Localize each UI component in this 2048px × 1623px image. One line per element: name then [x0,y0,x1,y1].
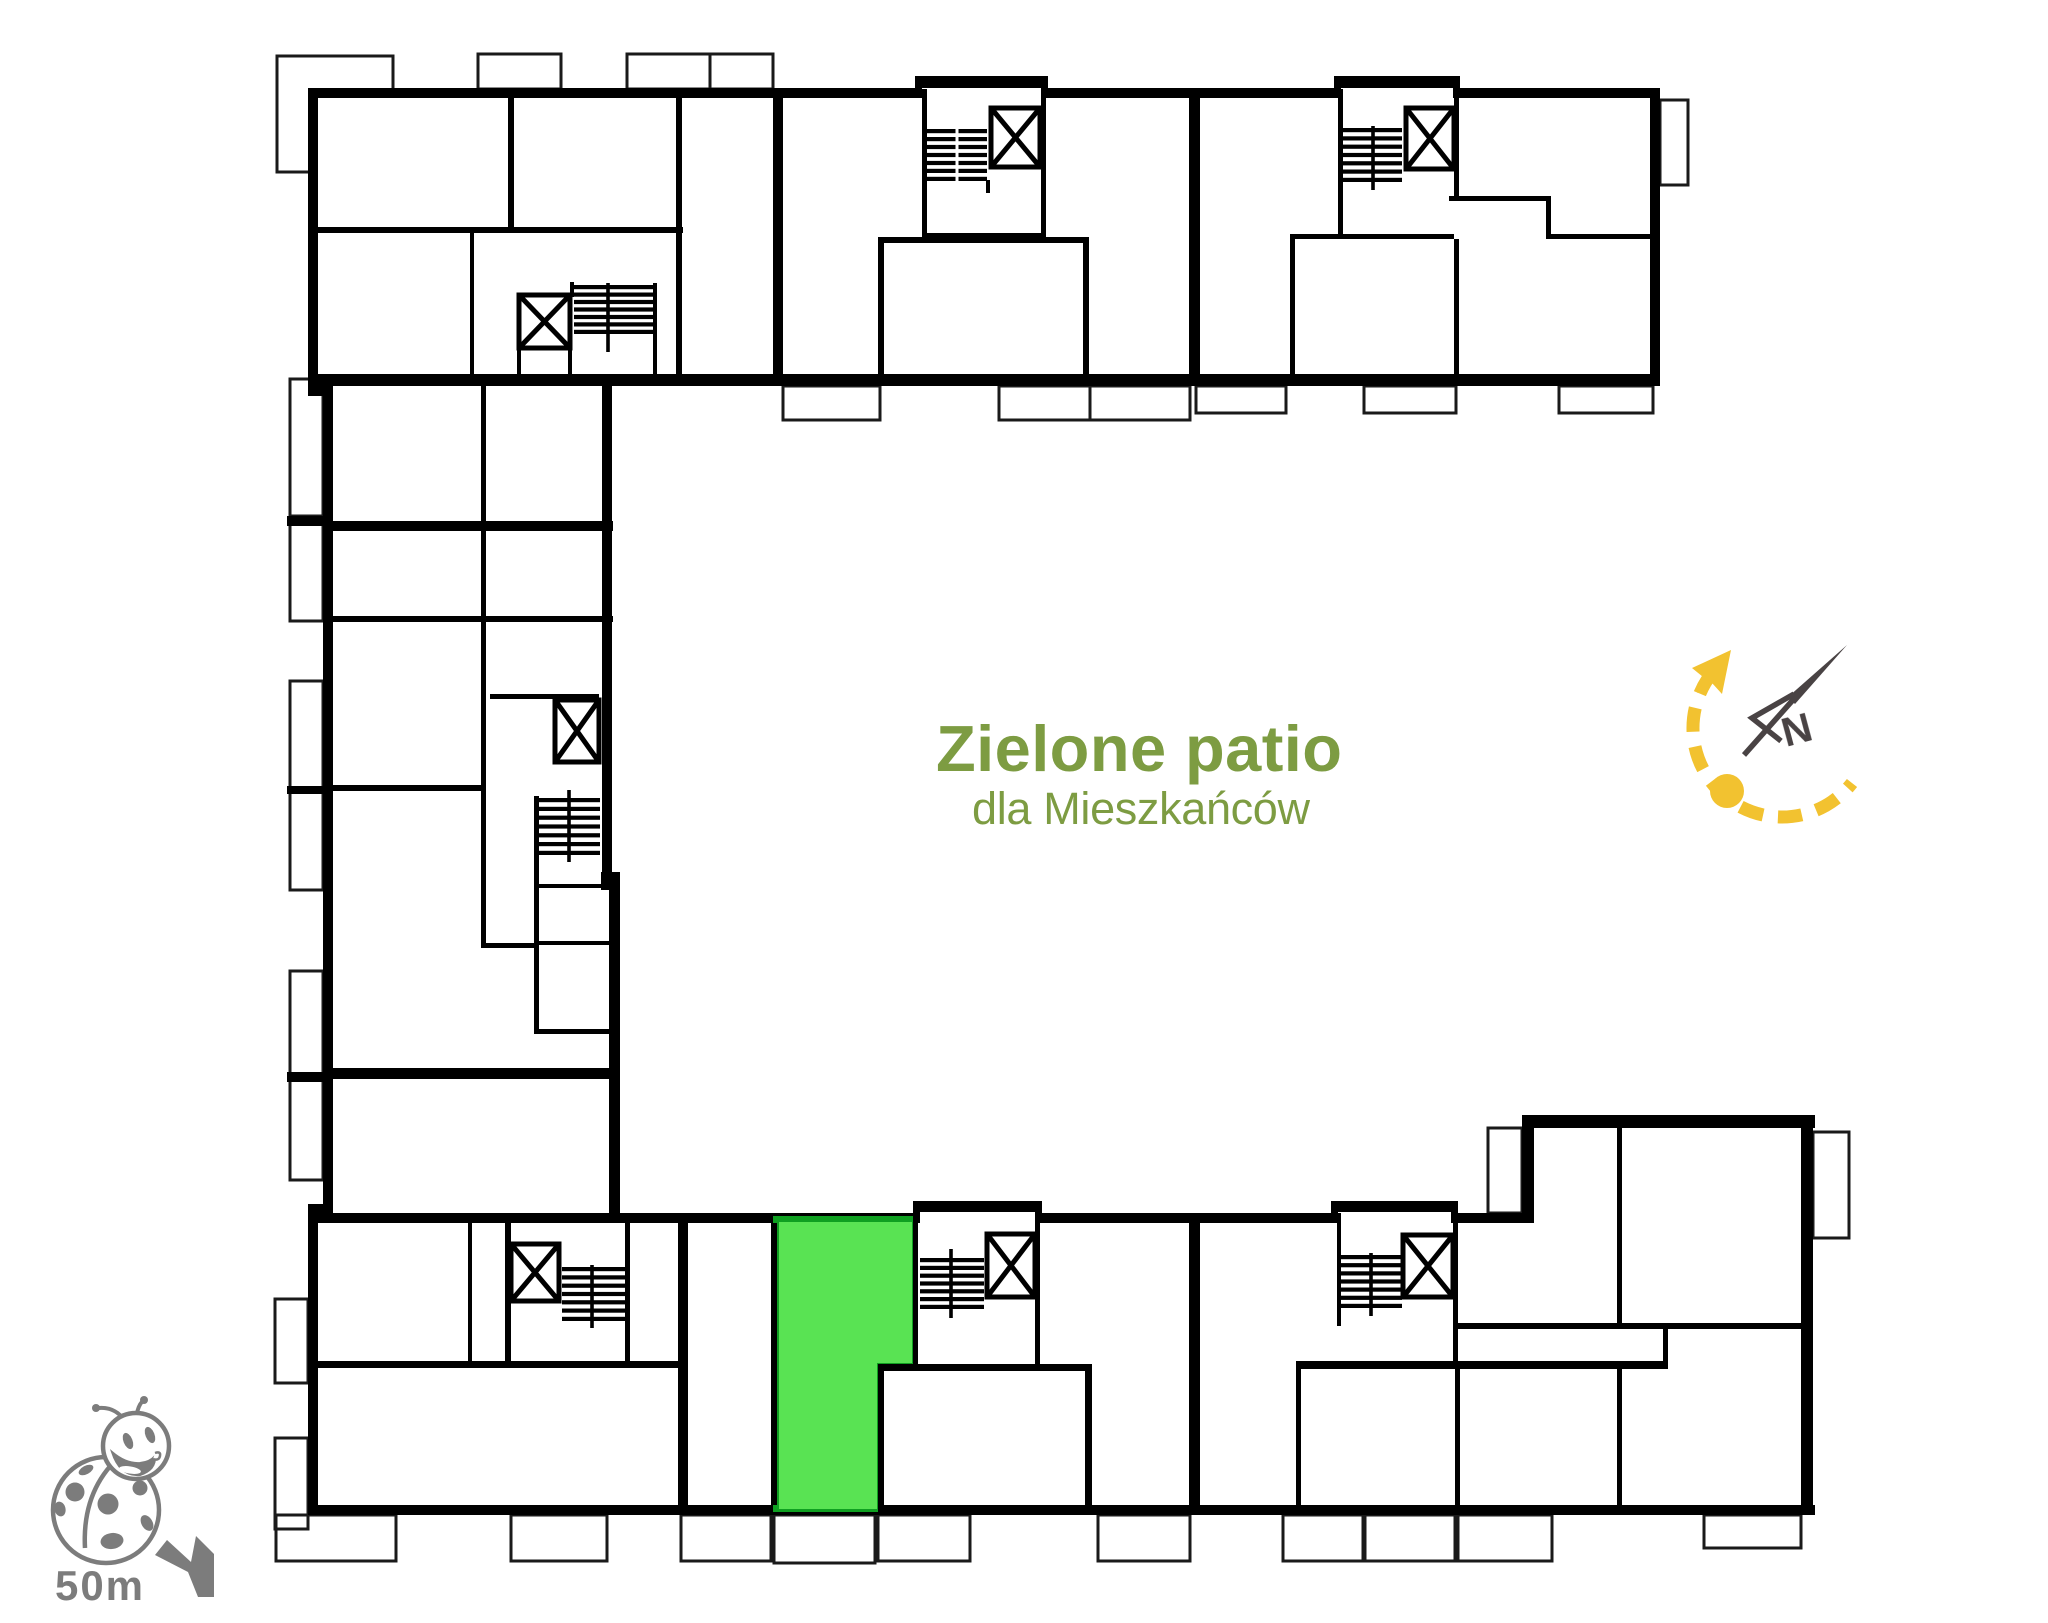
svg-text:dla Mieszkańców: dla Mieszkańców [972,783,1311,834]
svg-text:Zielone patio: Zielone patio [936,712,1342,785]
svg-text:50m: 50m [55,1562,143,1609]
